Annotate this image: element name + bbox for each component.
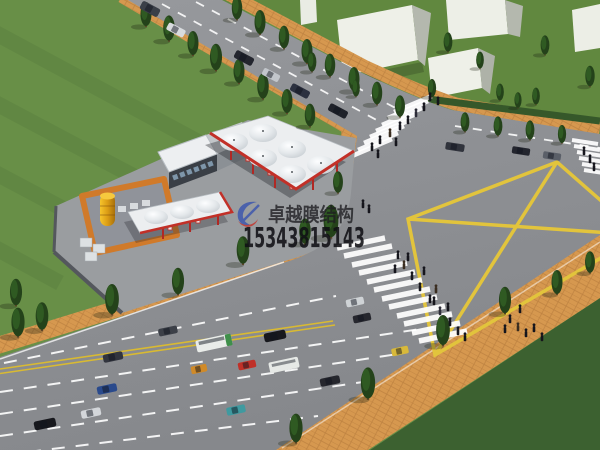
rendering-canvas: 卓越膜结构 15343815143 [0,0,600,450]
building-2-front [446,0,508,40]
scene-svg: 卓越膜结构 15343815143 [0,0,600,450]
watermark-phone: 15343815143 [243,221,365,254]
building-4-front [572,4,600,52]
